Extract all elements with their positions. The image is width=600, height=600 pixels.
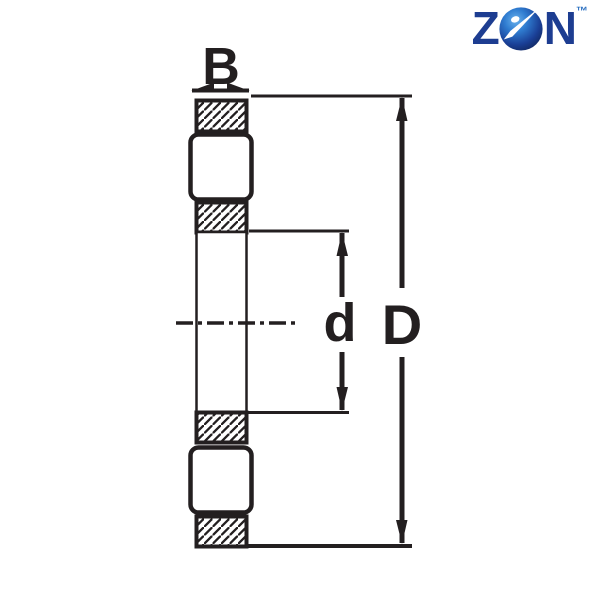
ring-section-hatched-top-inner xyxy=(197,203,247,233)
bearing-ball-icon xyxy=(497,4,545,52)
dim-label-D: D xyxy=(382,293,422,356)
logo-letter-n: N xyxy=(544,6,575,50)
dim-d-arrow-down-icon xyxy=(337,387,349,411)
dim-d-arrow-up-icon xyxy=(337,232,349,256)
bearing-drawing-page: B D d Z xyxy=(0,0,600,600)
rolling-element-top xyxy=(191,135,252,200)
dim-D-arrow-up-icon xyxy=(396,97,408,121)
bearing-cross-section-drawing: B D d xyxy=(0,0,600,600)
dim-label-B: B xyxy=(202,38,240,96)
trademark-symbol: ™ xyxy=(576,5,588,17)
ring-section-hatched-bottom-outer xyxy=(197,517,247,547)
dim-label-d: d xyxy=(324,293,357,353)
dim-D-arrow-down-icon xyxy=(396,520,408,544)
rolling-element-bottom xyxy=(191,448,252,513)
zen-logo: Z N ™ xyxy=(472,4,588,52)
ball-sphere xyxy=(499,7,542,50)
ring-section-hatched-top-outer xyxy=(197,101,247,132)
logo-letter-z: Z xyxy=(472,6,498,50)
ring-section-hatched-bottom-inner xyxy=(197,413,247,443)
